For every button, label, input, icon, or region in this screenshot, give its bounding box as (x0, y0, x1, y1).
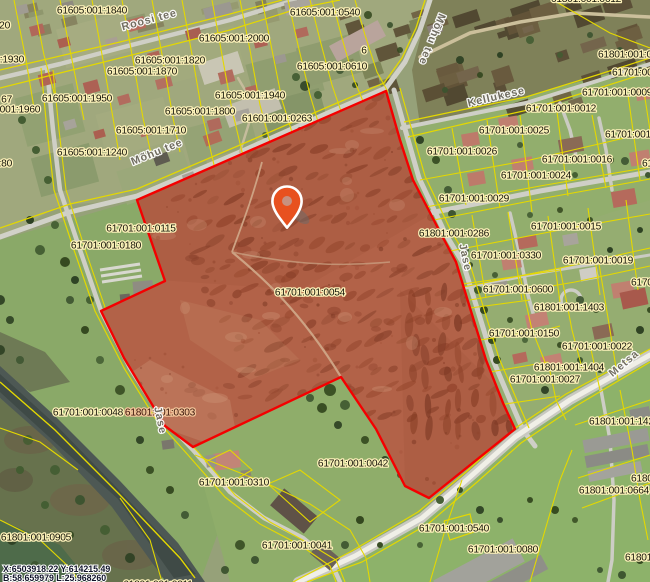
svg-text:61701:001:0115: 61701:001:0115 (106, 224, 176, 235)
svg-text:61605:001:1960: 61605:001:1960 (0, 105, 41, 116)
svg-text:61801:001:0656: 61801:001:0656 (631, 474, 650, 485)
svg-text:61701:001:0024: 61701:001:0024 (501, 171, 572, 182)
svg-text:61701:001:0029: 61701:001:0029 (439, 194, 510, 205)
svg-text:61801:001:0673: 61801:001:0673 (625, 553, 650, 564)
svg-text:61701:001:0026: 61701:001:0026 (427, 147, 498, 158)
svg-text:61701:001:0025: 61701:001:0025 (479, 126, 550, 137)
svg-text:61605:001:2000: 61605:001:2000 (199, 34, 270, 45)
svg-text:61801:001:0286: 61801:001:0286 (419, 229, 490, 240)
svg-text:61701:001:0015: 61701:001:0015 (531, 222, 602, 233)
svg-text:61605:001:1800: 61605:001:1800 (165, 107, 236, 118)
svg-text:61701:001:0018: 61701:001:0018 (642, 159, 650, 170)
svg-text:61605:001:1950: 61605:001:1950 (42, 94, 113, 105)
svg-text:61605:001:1940: 61605:001:1940 (215, 91, 286, 102)
svg-text:61701:001:0009: 61701:001:0009 (582, 88, 650, 99)
svg-text:B:58.659979 L:25.968260: B:58.659979 L:25.968260 (3, 573, 106, 582)
svg-text:61701:001:0310: 61701:001:0310 (199, 478, 270, 489)
svg-text:61801:001:0613: 61801:001:0613 (598, 50, 650, 61)
svg-text:61701:001:0600: 61701:001:0600 (483, 285, 554, 296)
svg-text:61801:001:0905: 61801:001:0905 (1, 533, 72, 544)
svg-text:61605:001:1710: 61605:001:1710 (116, 126, 187, 137)
svg-text:61701:001:0180: 61701:001:0180 (71, 241, 142, 252)
svg-text:61701:001:0022: 61701:001:0022 (562, 342, 633, 353)
svg-text:61701:001:0150: 61701:001:0150 (489, 329, 560, 340)
svg-text:61605:001:0540: 61605:001:0540 (290, 8, 361, 19)
svg-text:61605:001:1820: 61605:001:1820 (135, 56, 206, 67)
svg-text:61701:001:0012: 61701:001:0012 (526, 104, 597, 115)
svg-text:61801:001:1404: 61801:001:1404 (534, 363, 605, 374)
svg-text:61605:001:1240: 61605:001:1240 (57, 148, 128, 159)
svg-text:61701:001:0540: 61701:001:0540 (419, 524, 490, 535)
svg-text:61701:001:0017: 61701:001:0017 (605, 130, 650, 141)
svg-text:61701:001:0042: 61701:001:0042 (318, 459, 389, 470)
svg-text:61601:001:0263: 61601:001:0263 (242, 114, 313, 125)
svg-text:61605:001:1930: 61605:001:1930 (0, 55, 25, 66)
svg-text::80: :80 (0, 159, 13, 170)
svg-text:61605:001:1840: 61605:001:1840 (57, 6, 128, 17)
svg-text:61701:001:0016: 61701:001:0016 (542, 155, 613, 166)
svg-text:61701:001:0041: 61701:001:0041 (262, 541, 333, 552)
svg-text:61605:001:1870: 61605:001:1870 (107, 67, 178, 78)
svg-text:61701:001:0048: 61701:001:0048 (53, 408, 124, 419)
svg-text:61801:001:0612: 61801:001:0612 (551, 0, 622, 5)
svg-text:6: 6 (361, 46, 367, 57)
svg-text:61701:001:0080: 61701:001:0080 (468, 545, 539, 556)
svg-text:61701:001:0054: 61701:001:0054 (275, 288, 346, 299)
svg-text::20: :20 (0, 21, 11, 32)
svg-text:61801:001:1403: 61801:001:1403 (534, 303, 605, 314)
svg-text:61701:001:0601: 61701:001:0601 (631, 278, 650, 289)
svg-text:61701:001:0027: 61701:001:0027 (510, 375, 581, 386)
svg-text:61701:001:0019: 61701:001:0019 (563, 256, 634, 267)
svg-text:61801:001:0664: 61801:001:0664 (579, 486, 650, 497)
svg-text:61801:001:1421: 61801:001:1421 (589, 417, 650, 428)
svg-text:61701:001:0611: 61701:001:0611 (612, 68, 650, 79)
svg-text:61605:001:0610: 61605:001:0610 (297, 62, 368, 73)
svg-text:61701:001:0330: 61701:001:0330 (471, 251, 542, 262)
